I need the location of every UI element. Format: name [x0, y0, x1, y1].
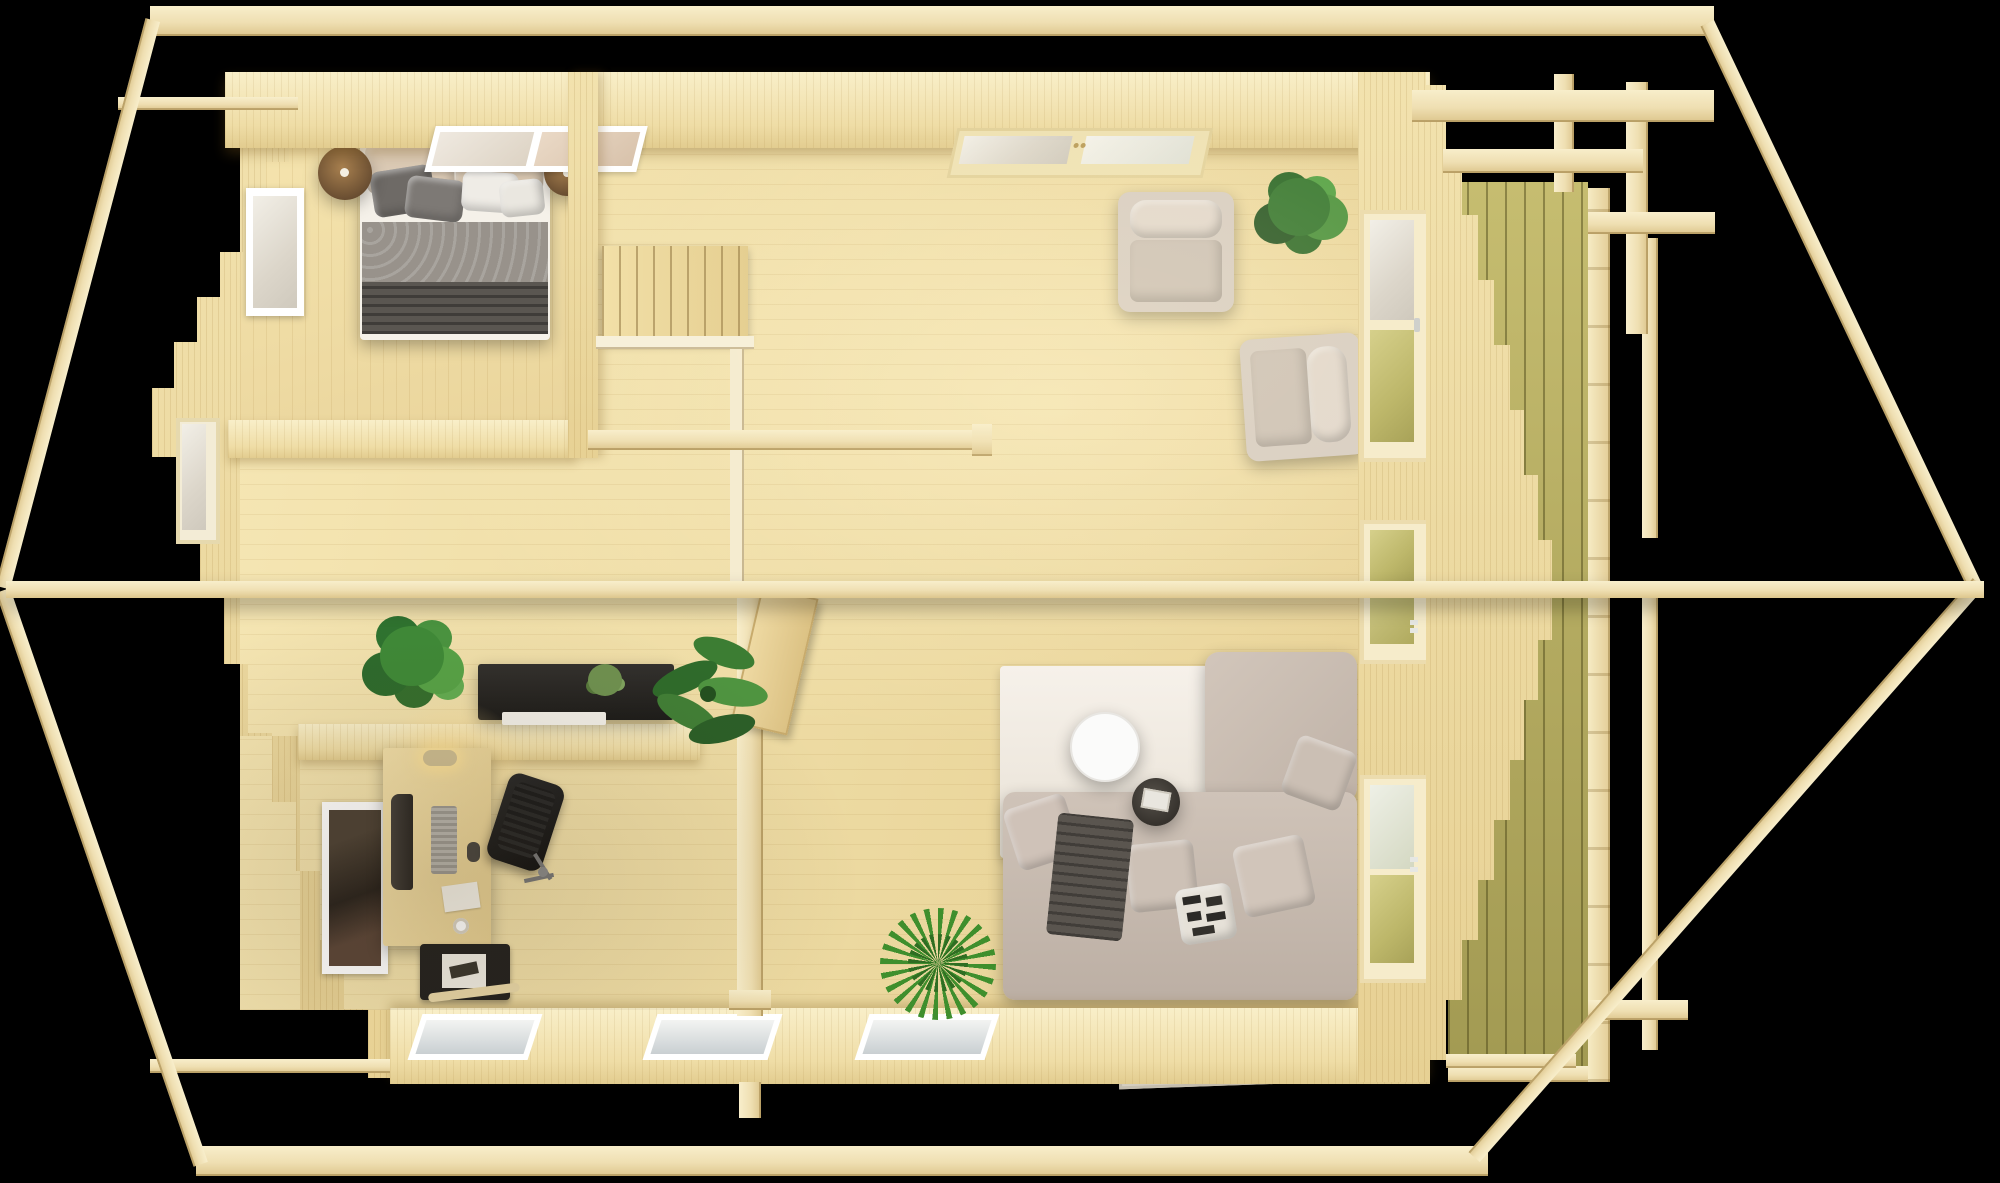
rafter-top-left	[0, 18, 160, 589]
rafter-bottom-left	[0, 588, 208, 1167]
fiddle-leaf-plant	[380, 626, 444, 686]
desk	[383, 748, 491, 946]
coffee-table	[1070, 712, 1140, 782]
coffee-cup	[453, 918, 469, 934]
banana-plant	[648, 638, 768, 758]
side-table	[1132, 778, 1180, 826]
gable-slit-window	[176, 418, 220, 544]
south-window	[408, 1014, 543, 1060]
terrace-edge-beam	[1448, 1066, 1588, 1082]
sofa-cushion	[1231, 833, 1316, 918]
console-plant	[588, 664, 622, 696]
bed-pillow-white	[498, 178, 546, 218]
keyboard	[431, 806, 457, 874]
cabin-floorplan-render	[0, 0, 2000, 1183]
terrace-rail-inner	[1588, 188, 1610, 1082]
south-window	[855, 1014, 1000, 1060]
living-north-window	[947, 128, 1214, 178]
bedroom-west-window	[246, 188, 304, 316]
graphic-pillow	[1174, 882, 1238, 946]
south-window	[643, 1014, 783, 1060]
purlin-left-top	[118, 97, 298, 110]
terrace-top-rail	[1588, 212, 1715, 234]
monitor	[391, 794, 413, 890]
north-wall	[225, 72, 1430, 148]
grass-plant	[880, 908, 996, 1020]
bed-pillow-grey	[404, 175, 467, 224]
mid-post-base	[729, 990, 771, 1010]
pergola-beam-1	[1412, 90, 1714, 122]
stair-railing	[596, 336, 754, 349]
living-room-plant	[1268, 178, 1330, 236]
collar-beam	[588, 430, 990, 450]
bedroom-partition-east	[568, 72, 598, 458]
collar-beam-corbel	[972, 424, 992, 456]
staircase	[602, 246, 748, 342]
eave-beam-top	[150, 6, 1714, 36]
magazine	[1140, 788, 1171, 813]
stair-railing-side	[730, 349, 744, 585]
terrace-door-3	[1360, 775, 1432, 983]
pendant-lamp-left	[318, 146, 372, 200]
armchair-upper	[1118, 192, 1234, 312]
ridge-beam	[6, 581, 1984, 598]
rafter-top-right	[1700, 20, 1984, 595]
magazine-rack	[420, 944, 510, 1000]
bed-throw	[362, 282, 548, 334]
eave-beam-bottom	[196, 1146, 1488, 1176]
desk-lamp	[423, 750, 457, 766]
bedroom-partition-south	[228, 420, 576, 458]
armchair-lower	[1239, 332, 1367, 462]
pergola-beam-2	[1443, 149, 1643, 173]
bed-blanket	[362, 222, 548, 284]
purlin-left-bottom	[150, 1059, 390, 1073]
mid-post-stub	[739, 1082, 761, 1118]
bedroom-roof-window	[424, 126, 647, 172]
sofa-throw	[1046, 812, 1134, 941]
terrace-rail-outer-lower	[1642, 598, 1658, 1050]
terrace-door-1	[1360, 210, 1432, 462]
